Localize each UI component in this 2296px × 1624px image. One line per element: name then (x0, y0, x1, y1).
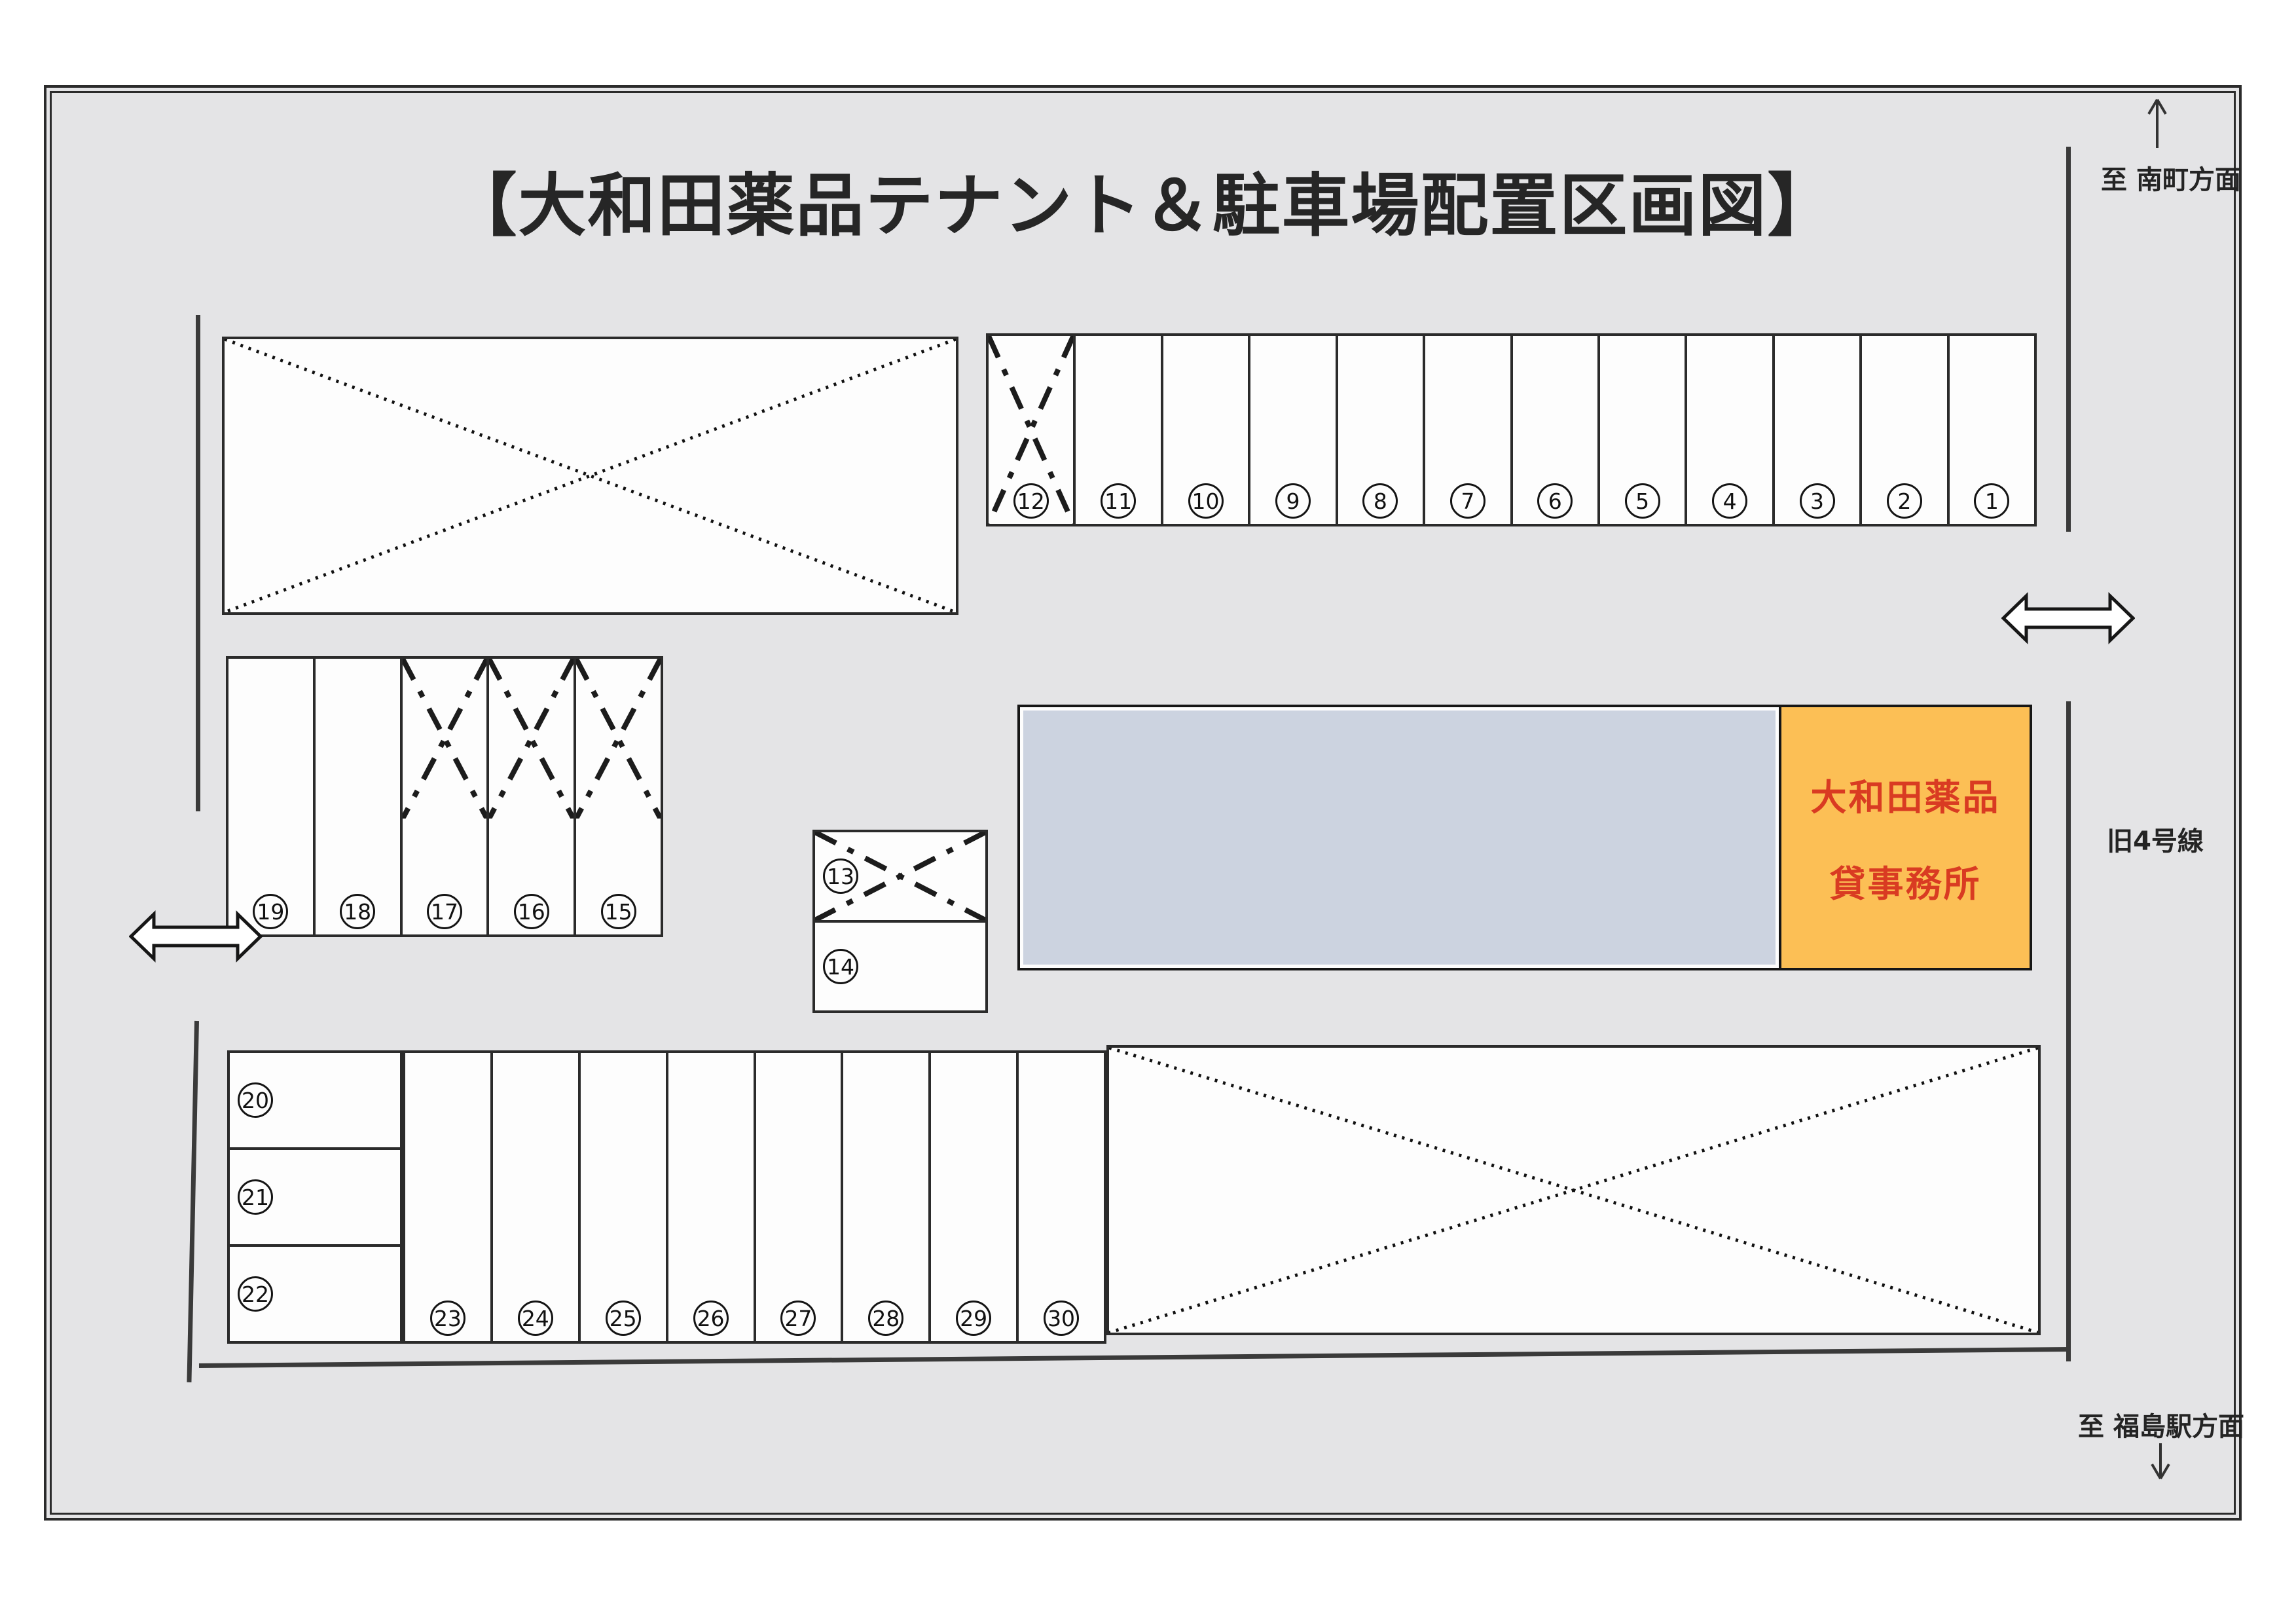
parking-stall-11: 11 (1073, 336, 1160, 524)
x-mark (403, 659, 487, 819)
bottom-boundary-line (199, 1347, 2070, 1368)
parking-stall-4: 4 (1685, 336, 1772, 524)
parking-stall-13: 13 (815, 832, 985, 920)
left-parking-stack: 202122 (227, 1050, 403, 1344)
left-boundary-line-lower (187, 1021, 199, 1382)
rental-office-block: 大和田薬品 貸事務所 (1779, 707, 2030, 968)
road-label: 旧4号線 (2066, 820, 2244, 858)
stall-number: 1 (1974, 483, 2009, 519)
two-way-arrow-icon-left (129, 910, 263, 963)
stall-number: 24 (518, 1301, 553, 1336)
parking-stall-8: 8 (1336, 336, 1423, 524)
stall-number: 4 (1712, 483, 1747, 519)
stall-number: 20 (238, 1082, 273, 1118)
stall-number: 26 (693, 1301, 729, 1336)
parking-stall-7: 7 (1423, 336, 1510, 524)
down-arrow-icon (2145, 1442, 2176, 1483)
stall-number: 27 (780, 1301, 816, 1336)
parking-stall-1: 1 (1947, 336, 2034, 524)
stall-number: 17 (427, 894, 462, 929)
parking-stall-17: 17 (400, 659, 487, 934)
parking-stall-14: 14 (815, 920, 985, 1010)
stall-number: 8 (1362, 483, 1398, 519)
stall-number: 12 (1013, 483, 1049, 519)
stall-number: 5 (1625, 483, 1660, 519)
diagram-frame: 【大和田薬品テナント＆駐車場配置区画図】 至 南町方面 121110987654… (44, 85, 2242, 1521)
direction-label-minamimachi: 至 南町方面 (2085, 158, 2257, 196)
stall-number: 15 (601, 894, 636, 929)
parking-stall-28: 28 (841, 1053, 928, 1341)
stall-number: 10 (1188, 483, 1224, 519)
top-left-lot (222, 337, 958, 615)
left-boundary-line-upper (196, 315, 200, 811)
stall-number: 9 (1275, 483, 1311, 519)
parking-stall-12: 12 (989, 336, 1073, 524)
stall-number: 25 (606, 1301, 641, 1336)
stall-number: 29 (956, 1301, 991, 1336)
parking-stall-6: 6 (1510, 336, 1597, 524)
parking-stall-10: 10 (1161, 336, 1248, 524)
parking-stall-20: 20 (230, 1053, 400, 1147)
building-main-area (1023, 710, 1776, 965)
parking-stall-16: 16 (486, 659, 574, 934)
dotted-x-mark (225, 339, 956, 612)
parking-stall-25: 25 (578, 1053, 666, 1341)
building-block: 大和田薬品 貸事務所 (1017, 705, 2032, 970)
x-mark (489, 659, 574, 819)
stall-number: 14 (823, 949, 858, 984)
parking-stall-9: 9 (1248, 336, 1335, 524)
parking-stall-18: 18 (313, 659, 400, 934)
parking-stall-2: 2 (1859, 336, 1946, 524)
stall-number: 2 (1887, 483, 1922, 519)
stall-number: 21 (238, 1179, 273, 1215)
parking-stall-15: 15 (574, 659, 661, 934)
page-title: 【大和田薬品テナント＆駐車場配置区画図】 (46, 150, 2239, 249)
stall-number: 16 (514, 894, 549, 929)
stall-number: 22 (238, 1276, 273, 1312)
rental-office-type: 貸事務所 (1829, 855, 1981, 907)
page: { "title": "【大和田薬品テナント＆駐車場配置区画図】", "dire… (0, 0, 2296, 1624)
stall-number: 7 (1450, 483, 1485, 519)
parking-stall-30: 30 (1016, 1053, 1104, 1341)
parking-stall-27: 27 (754, 1053, 841, 1341)
stall-number: 30 (1044, 1301, 1079, 1336)
two-way-arrow-icon-right (2001, 592, 2135, 644)
parking-stall-29: 29 (928, 1053, 1016, 1341)
stall-number: 28 (868, 1301, 903, 1336)
parking-stall-22: 22 (230, 1244, 400, 1341)
bottom-right-lot (1106, 1045, 2041, 1335)
x-mark (576, 659, 661, 819)
stall-number: 3 (1800, 483, 1835, 519)
parking-stall-3: 3 (1772, 336, 1859, 524)
parking-stall-23: 23 (405, 1053, 490, 1341)
up-arrow-icon (2141, 96, 2173, 149)
dotted-x-mark (1109, 1048, 2038, 1333)
stall-number: 6 (1537, 483, 1573, 519)
stall-number: 11 (1101, 483, 1136, 519)
right-boundary-line-lower (2066, 701, 2071, 1361)
direction-label-fukushima-station: 至 福島駅方面 (2063, 1405, 2259, 1443)
middle-parking-row: 1918171615 (226, 656, 663, 937)
stall-number: 18 (340, 894, 375, 929)
stall-number: 23 (430, 1301, 465, 1336)
top-parking-row: 121110987654321 (986, 333, 2037, 526)
parking-stall-24: 24 (490, 1053, 578, 1341)
pair-parking-block: 1314 (812, 830, 988, 1013)
parking-stall-5: 5 (1597, 336, 1685, 524)
bottom-parking-row: 2324252627282930 (403, 1050, 1106, 1344)
parking-stall-19: 19 (228, 659, 313, 934)
parking-stall-26: 26 (666, 1053, 754, 1341)
stall-number: 13 (823, 858, 858, 894)
parking-stall-21: 21 (230, 1147, 400, 1244)
right-boundary-line-upper (2066, 147, 2071, 532)
rental-office-name: 大和田薬品 (1810, 768, 2000, 821)
